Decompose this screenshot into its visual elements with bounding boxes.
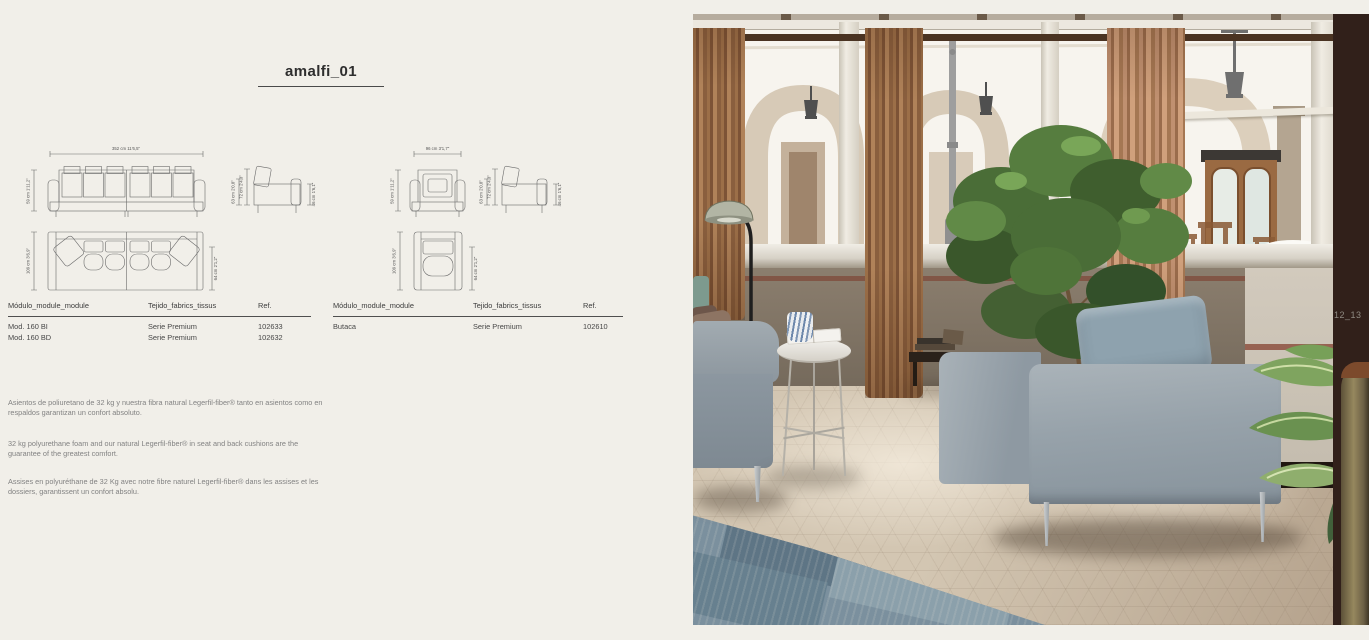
description-en: 32 kg polyurethane foam and our natural …	[8, 439, 330, 458]
curtain-middle	[865, 28, 923, 398]
table-row: Mod. 160 BD Serie Premium 102632	[8, 333, 311, 342]
table-header: Módulo_module_module Tejido_fabrics_tiss…	[333, 301, 623, 310]
description-fr: Assises en polyuréthane de 32 Kg avec no…	[8, 477, 330, 496]
column-header-ref: Ref.	[583, 301, 623, 310]
ref-cell: 102632	[258, 333, 311, 342]
module-cell: Butaca	[333, 322, 473, 331]
column-header-fabric: Tejido_fabrics_tissus	[473, 301, 583, 310]
dimension-label: 72 cm 2'4,3"	[487, 175, 492, 199]
bench-leg	[913, 362, 917, 386]
window-mullion	[839, 22, 859, 270]
table-rule	[8, 316, 311, 317]
sofa-technical-drawing: 352 cm 11'6,5" 59 cm 1'11,2" 63 cm 2'0,8…	[20, 140, 320, 300]
dimension-label: 63 cm 2'0,8"	[231, 180, 236, 204]
dimension-label: 109 cm 3'6,9"	[26, 248, 31, 274]
ref-cell: 102633	[258, 322, 311, 331]
fabric-cell: Serie Premium	[473, 322, 583, 331]
column-header-module: Módulo_module_module	[333, 301, 473, 310]
ref-cell: 102610	[583, 322, 623, 331]
table-row: Butaca Serie Premium 102610	[333, 322, 623, 331]
dimension-label: 64 cm 2'1,2"	[213, 256, 218, 280]
armchair-arm	[1029, 364, 1281, 504]
table-header: Módulo_module_module Tejido_fabrics_tiss…	[8, 301, 311, 310]
table-row: Mod. 160 BI Serie Premium 102633	[8, 322, 311, 331]
armchair-seat	[939, 352, 1041, 484]
dimension-label: 352 cm 11'6,5"	[112, 146, 141, 151]
sofa-shadow	[693, 486, 788, 512]
dimension-label: 63 cm 2'0,8"	[479, 180, 484, 204]
table-leg	[813, 358, 815, 470]
sofa-spec-table: Módulo_module_module Tejido_fabrics_tiss…	[8, 301, 311, 342]
stone-pillar	[1341, 362, 1369, 625]
sofa-body	[693, 374, 773, 468]
dimension-label: 72 cm 2'4,3"	[239, 175, 244, 199]
dimension-label: 46 cm 1'6,1"	[557, 182, 562, 206]
dimension-label: 109 cm 3'6,9"	[392, 248, 397, 274]
description-es: Asientos de poliuretano de 32 kg y nuest…	[8, 398, 330, 417]
lifestyle-photo: 12_13	[693, 14, 1369, 625]
page-title: amalfi_01	[258, 63, 384, 87]
catalog-spread: amalfi_01	[0, 0, 1369, 640]
armchair-spec-table: Módulo_module_module Tejido_fabrics_tiss…	[333, 301, 623, 331]
fabric-cell: Serie Premium	[148, 333, 258, 342]
column-header-module: Módulo_module_module	[8, 301, 148, 310]
column-header-fabric: Tejido_fabrics_tissus	[148, 301, 258, 310]
window-frame	[693, 20, 1341, 30]
dimension-label: 46 cm 1'6,1"	[311, 182, 316, 206]
fabric-cell: Serie Premium	[148, 322, 258, 331]
dimension-label: 96 cm 3'1,7"	[426, 146, 450, 151]
dimension-label: 64 cm 2'1,2"	[473, 256, 478, 280]
armchair-technical-drawing: 96 cm 3'1,7" 59 cm 1'11,2" 63 cm 2'0,8" …	[390, 140, 575, 300]
dimension-label: 59 cm 1'11,2"	[26, 178, 31, 204]
curtain-rod	[693, 34, 1369, 41]
dimension-label: 59 cm 1'11,2"	[390, 178, 395, 204]
page-number: 12_13	[1334, 310, 1362, 320]
table-rule	[333, 316, 623, 317]
porcelain-vase	[787, 312, 813, 342]
module-cell: Mod. 160 BI	[8, 322, 148, 331]
module-cell: Mod. 160 BD	[8, 333, 148, 342]
column-header-ref: Ref.	[258, 301, 311, 310]
